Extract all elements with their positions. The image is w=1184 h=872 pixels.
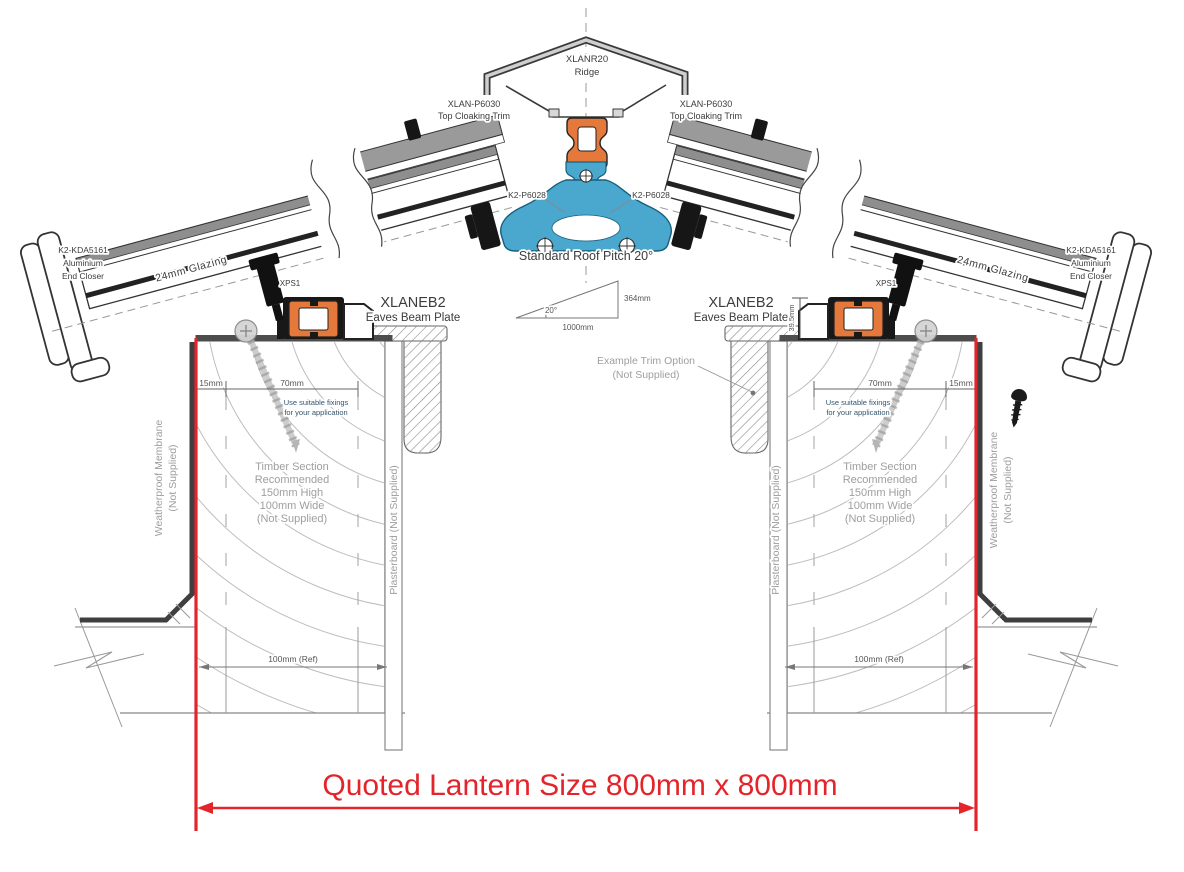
eaves-beam-code-right: XLANEB2 (708, 295, 773, 311)
zone-dim-left: 70mm (280, 378, 304, 388)
pitch-angle-label: 20° (545, 306, 557, 315)
timber-note-left-2: 150mm High (261, 487, 323, 499)
timber-note-right-4: (Not Supplied) (845, 513, 915, 525)
trim-option-left (361, 326, 447, 453)
xps-label-right: XPS1 (876, 279, 897, 288)
timber-note-left-0: Timber Section (255, 461, 329, 473)
cloaking-name-right: Top Cloaking Trim (670, 111, 742, 121)
roof-lantern-section-drawing: XLANR20 Ridge XLAN-P6030 Top Cloaking Tr… (0, 0, 1184, 872)
membrane-note1-left: Weatherproof Membrane (153, 420, 165, 537)
screw-icon (1006, 388, 1029, 429)
end-closer-line2-right: Aluminium (1071, 258, 1111, 268)
timber-note-right-0: Timber Section (843, 461, 917, 473)
wall-ref-dimension-right (785, 664, 973, 670)
membrane-note2-right: (Not Supplied) (1002, 456, 1014, 523)
beam-height-label: 39.5mm (787, 304, 796, 331)
eaves-beam-name-left: Eaves Beam Plate (366, 312, 461, 324)
edge-dim-right: 15mm (949, 378, 973, 388)
cloaking-code-right: XLAN-P6030 (680, 99, 733, 109)
timber-note-right-1: Recommended (843, 474, 918, 486)
xps-label-left: XPS1 (280, 279, 301, 288)
quoted-size-label: Quoted Lantern Size 800mm x 800mm (322, 769, 837, 802)
membrane-note2-left: (Not Supplied) (167, 444, 179, 511)
zone-dim-right: 70mm (868, 378, 892, 388)
glazing-bar-left (14, 98, 536, 388)
ridge-code-label: XLANR20 (566, 54, 608, 65)
timber-note-left-1: Recommended (255, 474, 330, 486)
cloaking-code-left: XLAN-P6030 (448, 99, 501, 109)
fixing-note2-right: for your application (826, 408, 889, 417)
wall-ref-label-right: 100mm (Ref) (854, 654, 904, 664)
plasterboard-note-right: Plasterboard (Not Supplied) (770, 465, 782, 595)
edge-dim-left: 15mm (199, 378, 223, 388)
ridge-clamp-label-right: K2-P6028 (632, 190, 670, 200)
timber-note-right-2: 150mm High (849, 487, 911, 499)
ridge-name-label: Ridge (575, 67, 600, 78)
timber-note-left-3: 100mm Wide (260, 500, 325, 512)
timber-note-left-4: (Not Supplied) (257, 513, 327, 525)
trim-option-line2: (Not Supplied) (612, 369, 679, 381)
eaves-beam-name-right: Eaves Beam Plate (694, 312, 789, 324)
wall-ref-dimension-left (199, 664, 387, 670)
end-closer-line3-right: End Closer (1070, 271, 1112, 281)
end-closer-line3-left: End Closer (62, 271, 104, 281)
ridge-clamp-label-left: K2-P6028 (508, 190, 546, 200)
fixing-note2-left: for your application (284, 408, 347, 417)
fixing-note1-left: Use suitable fixings (284, 398, 349, 407)
wall-ref-label-left: 100mm (Ref) (268, 654, 318, 664)
trim-option-right (725, 326, 811, 453)
pitch-caption: Standard Roof Pitch 20° (519, 249, 653, 263)
membrane-note1-right: Weatherproof Membrane (988, 432, 1000, 549)
plasterboard-note-left: Plasterboard (Not Supplied) (388, 465, 400, 595)
end-closer-code-left: K2-KDA5161 (58, 245, 108, 255)
cloaking-name-left: Top Cloaking Trim (438, 111, 510, 121)
pitch-triangle (516, 281, 618, 318)
timber-note-right-3: 100mm Wide (848, 500, 913, 512)
trim-option-line1: Example Trim Option (597, 355, 695, 367)
pitch-run-label: 1000mm (562, 323, 593, 332)
glazing-bar-right (636, 98, 1158, 388)
end-closer-line2-left: Aluminium (63, 258, 103, 268)
fixing-note1-right: Use suitable fixings (826, 398, 891, 407)
end-closer-code-right: K2-KDA5161 (1066, 245, 1116, 255)
pitch-rise-label: 364mm (624, 294, 651, 303)
eaves-beam-code-left: XLANEB2 (380, 295, 445, 311)
